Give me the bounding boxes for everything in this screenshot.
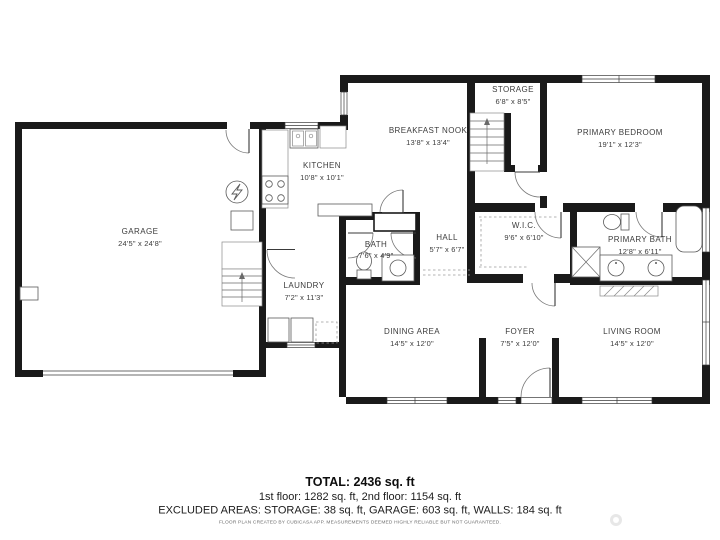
- room-label-foyer: FOYER: [505, 327, 535, 336]
- appliance-space: [316, 322, 337, 343]
- excluded-areas-text: EXCLUDED AREAS: STORAGE: 38 sq. ft, GARA…: [158, 505, 562, 517]
- room-dims-bath: 7'6" x 4'9": [359, 251, 394, 260]
- room-dims-living-room: 14'5" x 12'0": [610, 339, 654, 348]
- garage-stairs: [222, 242, 262, 306]
- hall-opening: [423, 270, 470, 275]
- laundry-fixtures: [268, 318, 337, 343]
- room-dims-foyer: 7'5" x 12'0": [500, 339, 539, 348]
- room-label-bath: BATH: [365, 240, 387, 249]
- floor-areas-text: 1st floor: 1282 sq. ft, 2nd floor: 1154 …: [259, 491, 461, 503]
- room-label-laundry: LAUNDRY: [284, 281, 325, 290]
- dryer-icon: [291, 318, 313, 342]
- fridge-icon: [320, 126, 346, 148]
- room-dims-kitchen: 10'8" x 10'1": [300, 173, 344, 182]
- room-label-breakfast-nook: BREAKFAST NOOK: [389, 126, 468, 135]
- room-dims-hall: 5'7" x 6'7": [430, 245, 465, 254]
- footer: TOTAL: 2436 sq. ft 1st floor: 1282 sq. f…: [158, 475, 562, 526]
- room-label-hall: HALL: [436, 233, 458, 242]
- stove-icon: [262, 176, 288, 204]
- room-label-dining-area: DINING AREA: [384, 327, 440, 336]
- storage-door: [515, 172, 540, 197]
- room-dims-breakfast-nook: 13'8" x 13'4": [406, 138, 450, 147]
- garage-door: [43, 371, 233, 375]
- washer-icon: [268, 318, 289, 342]
- watermark-logo: [610, 514, 622, 526]
- room-label-primary-bath: PRIMARY BATH: [608, 235, 672, 244]
- wic-bottom-door: [532, 283, 555, 306]
- room-dims-wic: 9'6" x 6'10": [504, 233, 543, 242]
- bath-closet: [374, 213, 416, 231]
- room-label-living-room: LIVING ROOM: [603, 327, 661, 336]
- room-dims-storage: 6'8" x 8'5": [496, 97, 531, 106]
- room-dims-primary-bedroom: 19'1" x 12'3": [598, 140, 642, 149]
- room-dims-dining-area: 14'5" x 12'0": [390, 339, 434, 348]
- total-area-text: TOTAL: 2436 sq. ft: [305, 475, 415, 489]
- kitchen-island: [318, 204, 372, 216]
- toilet-icon: [604, 214, 630, 230]
- room-label-kitchen: KITCHEN: [303, 161, 341, 170]
- primary-bath-door: [636, 212, 662, 237]
- shower-icon: [572, 247, 600, 277]
- garage-entry-door: [226, 129, 249, 153]
- kitchen-fixtures: [262, 126, 372, 216]
- bath-door-right: [391, 233, 416, 258]
- room-label-garage: GARAGE: [122, 227, 159, 236]
- utility-box: [20, 287, 38, 300]
- room-label-primary-bedroom: PRIMARY BEDROOM: [577, 128, 663, 137]
- kitchen-sink-icon: [290, 129, 318, 148]
- hall-door: [380, 190, 403, 213]
- floor-plan-drawing: GARAGE 24'5" x 24'8" KITCHEN 10'8" x 10'…: [0, 0, 720, 540]
- floor-plan-page: GARAGE 24'5" x 24'8" KITCHEN 10'8" x 10'…: [0, 0, 720, 540]
- electrical-panel-icon: [226, 181, 248, 203]
- disclaimer-text: FLOOR PLAN CREATED BY CUBICASA APP. MEAS…: [219, 520, 501, 526]
- room-dims-laundry: 7'2" x 11'3": [285, 293, 324, 302]
- room-dims-primary-bath: 12'8" x 6'11": [618, 247, 661, 256]
- laundry-door: [267, 250, 295, 279]
- wall-cabinet: [231, 211, 253, 230]
- bathtub-icon: [676, 206, 702, 252]
- double-vanity-icon: [600, 255, 672, 281]
- room-label-wic: W.I.C.: [512, 221, 536, 230]
- room-label-storage: STORAGE: [492, 85, 534, 94]
- exterior-hatch: [600, 286, 658, 296]
- front-door: [521, 368, 550, 397]
- upper-stairs: [470, 113, 504, 171]
- room-dims-garage: 24'5" x 24'8": [118, 239, 162, 248]
